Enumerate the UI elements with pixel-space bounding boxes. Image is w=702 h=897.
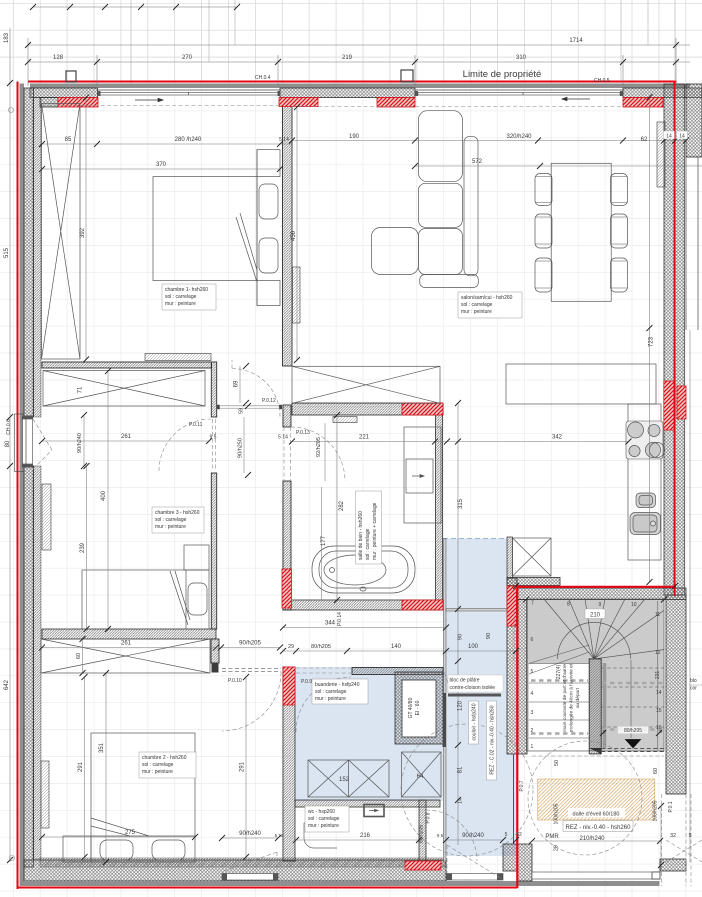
svg-text:90/h240: 90/h240 <box>239 831 261 837</box>
svg-text:261: 261 <box>121 434 132 440</box>
svg-text:219: 219 <box>342 55 353 61</box>
svg-text:351: 351 <box>99 742 105 753</box>
svg-text:128: 128 <box>53 55 64 61</box>
svg-text:couloir - hsfp240: couloir - hsfp240 <box>472 703 478 740</box>
svg-text:59: 59 <box>239 408 245 414</box>
svg-text:190: 190 <box>349 134 360 140</box>
svg-text:140: 140 <box>391 644 402 650</box>
svg-text:400: 400 <box>101 490 107 501</box>
svg-text:177: 177 <box>321 535 327 546</box>
svg-text:456: 456 <box>291 230 297 241</box>
svg-text:mur : peinture: mur : peinture <box>461 309 492 315</box>
svg-text:310: 310 <box>516 55 527 61</box>
svg-text:14: 14 <box>679 134 685 140</box>
svg-text:P.0.8: P.0.8 <box>426 812 432 823</box>
svg-text:bloc de plâtre: bloc de plâtre <box>450 678 480 684</box>
svg-text:mur : peinture: mur : peinture <box>308 823 339 829</box>
svg-text:16: 16 <box>656 725 662 731</box>
svg-text:90/h250: 90/h250 <box>238 438 244 458</box>
svg-text:80/h205: 80/h205 <box>624 728 642 734</box>
svg-text:mur : peinture + carrelage: mur : peinture + carrelage <box>372 502 378 560</box>
svg-text:5: 5 <box>689 833 692 839</box>
svg-text:buanderie - hsfp240: buanderie - hsfp240 <box>315 682 360 688</box>
svg-text:100/h205: 100/h205 <box>554 803 560 824</box>
svg-text:71: 71 <box>78 386 84 393</box>
svg-text:85: 85 <box>65 137 72 143</box>
svg-text:515: 515 <box>4 247 10 258</box>
svg-text:62: 62 <box>641 137 648 143</box>
svg-text:280 /h240: 280 /h240 <box>175 137 202 143</box>
svg-text:7: 7 <box>531 601 534 607</box>
svg-text:P.0.7: P.0.7 <box>519 780 525 791</box>
svg-text:320/h240: 320/h240 <box>506 134 532 140</box>
svg-text:90/h205: 90/h205 <box>239 641 261 647</box>
svg-text:69: 69 <box>234 380 240 387</box>
svg-text:9 5: 9 5 <box>437 833 444 838</box>
svg-text:blo: blo <box>690 678 697 684</box>
svg-text:dalle d'éveil 60/180: dalle d'éveil 60/180 <box>573 812 620 818</box>
svg-text:90/h240: 90/h240 <box>77 433 83 453</box>
svg-text:1: 1 <box>531 744 534 750</box>
svg-text:8: 8 <box>567 602 570 608</box>
svg-text:contre-cloison isolée: contre-cloison isolée <box>450 685 496 691</box>
svg-text:salle de bain - hsh260: salle de bain - hsh260 <box>358 511 364 560</box>
svg-text:92/h205: 92/h205 <box>316 437 322 457</box>
svg-text:183: 183 <box>4 32 10 43</box>
svg-text:P.0.12: P.0.12 <box>262 398 276 404</box>
svg-text:main courante de part et d'aut: main courante de part et d'autre <box>562 664 568 732</box>
svg-text:80/h205: 80/h205 <box>419 825 425 843</box>
svg-text:P.0.13: P.0.13 <box>296 430 310 436</box>
svg-text:344: 344 <box>325 621 336 627</box>
svg-text:sol : carrelage: sol : carrelage <box>365 528 371 560</box>
svg-text:5 14: 5 14 <box>279 137 289 143</box>
svg-text:392: 392 <box>80 227 86 238</box>
svg-text:5: 5 <box>531 669 534 675</box>
svg-text:275: 275 <box>125 830 136 836</box>
svg-text:salon/sam/cui - hsh260: salon/sam/cui - hsh260 <box>461 295 513 301</box>
svg-text:291: 291 <box>78 761 84 772</box>
svg-text:11: 11 <box>655 612 660 618</box>
svg-text:P.0.9: P.0.9 <box>301 679 312 685</box>
svg-text:282: 282 <box>339 500 345 511</box>
svg-text:210: 210 <box>590 613 601 619</box>
svg-text:239: 239 <box>80 542 86 553</box>
svg-text:14: 14 <box>656 690 662 696</box>
svg-text:P.0.10: P.0.10 <box>228 678 242 684</box>
svg-text:P.0.11: P.0.11 <box>189 422 203 428</box>
svg-text:216: 216 <box>360 833 371 839</box>
svg-text:4: 4 <box>531 691 534 697</box>
svg-text:cor: cor <box>690 686 697 692</box>
svg-text:3: 3 <box>531 710 534 716</box>
svg-text:270: 270 <box>182 55 193 61</box>
svg-text:64: 64 <box>417 774 424 780</box>
svg-text:2: 2 <box>531 728 534 734</box>
svg-text:P.0.1: P.0.1 <box>668 801 674 812</box>
svg-text:10: 10 <box>631 602 637 608</box>
svg-text:32: 32 <box>516 832 522 838</box>
svg-text:210/h240: 210/h240 <box>579 836 605 842</box>
svg-text:prolongée de 40cm à l'arrivée: prolongée de 40cm à l'arrivée et <box>569 663 575 732</box>
svg-text:sol : carrelage: sol : carrelage <box>461 302 493 308</box>
svg-text:5: 5 <box>505 832 508 838</box>
svg-text:12: 12 <box>655 650 661 656</box>
svg-text:81: 81 <box>458 766 464 773</box>
svg-text:315: 315 <box>458 498 464 509</box>
svg-text:mur : peinture: mur : peinture <box>155 524 186 530</box>
svg-text:P.0.14: P.0.14 <box>337 612 343 626</box>
svg-text:120: 120 <box>458 700 464 711</box>
svg-text:80: 80 <box>5 440 11 447</box>
svg-text:wc - hsp260: wc - hsp260 <box>308 809 335 815</box>
svg-text:90: 90 <box>458 634 464 640</box>
svg-text:231: 231 <box>655 671 661 680</box>
svg-text:90: 90 <box>486 633 492 639</box>
svg-text:sol : carrelage: sol : carrelage <box>308 816 340 822</box>
svg-text:60: 60 <box>76 653 82 659</box>
svg-text:sol : carrelage: sol : carrelage <box>165 294 197 300</box>
svg-text:PMR: PMR <box>545 834 559 840</box>
svg-text:221: 221 <box>359 435 370 441</box>
svg-text:mur : peinture: mur : peinture <box>142 769 173 775</box>
svg-text:9: 9 <box>599 602 602 608</box>
svg-text:90/h240: 90/h240 <box>462 833 484 839</box>
svg-text:14: 14 <box>458 798 464 804</box>
svg-text:227(4): 227(4) <box>556 664 562 679</box>
svg-text:572: 572 <box>472 159 483 165</box>
svg-text:723: 723 <box>649 336 655 347</box>
svg-text:REZ - C.02 - niv.-0.40 - hsh26: REZ - C.02 - niv.-0.40 - hsh260 <box>490 705 496 774</box>
svg-text:152: 152 <box>339 777 350 783</box>
svg-text:15: 15 <box>656 708 662 714</box>
svg-text:chambre 2 - hsh260: chambre 2 - hsh260 <box>142 755 187 761</box>
svg-text:chambre 1- hsh260: chambre 1- hsh260 <box>165 287 208 293</box>
svg-text:9 5: 9 5 <box>210 435 217 441</box>
svg-text:sol : carrelage: sol : carrelage <box>155 517 187 523</box>
svg-text:Limite de propriété: Limite de propriété <box>463 69 542 80</box>
svg-text:100/h205: 100/h205 <box>653 800 659 821</box>
svg-text:60: 60 <box>653 768 659 774</box>
svg-text:mur : peinture: mur : peinture <box>165 301 196 307</box>
svg-text:6: 6 <box>531 637 534 643</box>
svg-text:mur : peinture: mur : peinture <box>315 696 346 702</box>
svg-text:5 19: 5 19 <box>275 833 284 838</box>
svg-text:5 14: 5 14 <box>278 435 288 441</box>
svg-text:261: 261 <box>121 641 132 647</box>
svg-text:EI - 60: EI - 60 <box>415 700 421 715</box>
svg-text:50: 50 <box>554 760 560 766</box>
svg-text:au départ: au départ <box>575 687 581 708</box>
svg-text:CH.0.6: CH.0.6 <box>6 419 12 435</box>
svg-text:642: 642 <box>4 679 10 690</box>
svg-text:14: 14 <box>666 134 672 140</box>
svg-text:chambre 3 - hsh260: chambre 3 - hsh260 <box>155 510 200 516</box>
svg-text:32: 32 <box>670 833 676 839</box>
svg-text:370: 370 <box>156 162 167 168</box>
svg-text:342: 342 <box>552 435 563 441</box>
svg-text:sol : carrelage: sol : carrelage <box>142 762 174 768</box>
svg-text:CH.0.4: CH.0.4 <box>255 75 271 81</box>
svg-text:GT 40/80: GT 40/80 <box>408 697 414 718</box>
svg-text:1714: 1714 <box>569 38 583 44</box>
svg-text:REZ - niv.-0.40 - hsh260: REZ - niv.-0.40 - hsh260 <box>566 825 632 831</box>
svg-text:sol : carrelage: sol : carrelage <box>315 689 347 695</box>
svg-text:100: 100 <box>468 644 479 650</box>
svg-text:29: 29 <box>288 644 294 650</box>
svg-text:80/h205: 80/h205 <box>311 644 331 650</box>
svg-text:29: 29 <box>554 845 560 851</box>
svg-text:291: 291 <box>240 761 246 772</box>
svg-text:CH.0.5: CH.0.5 <box>594 78 610 84</box>
